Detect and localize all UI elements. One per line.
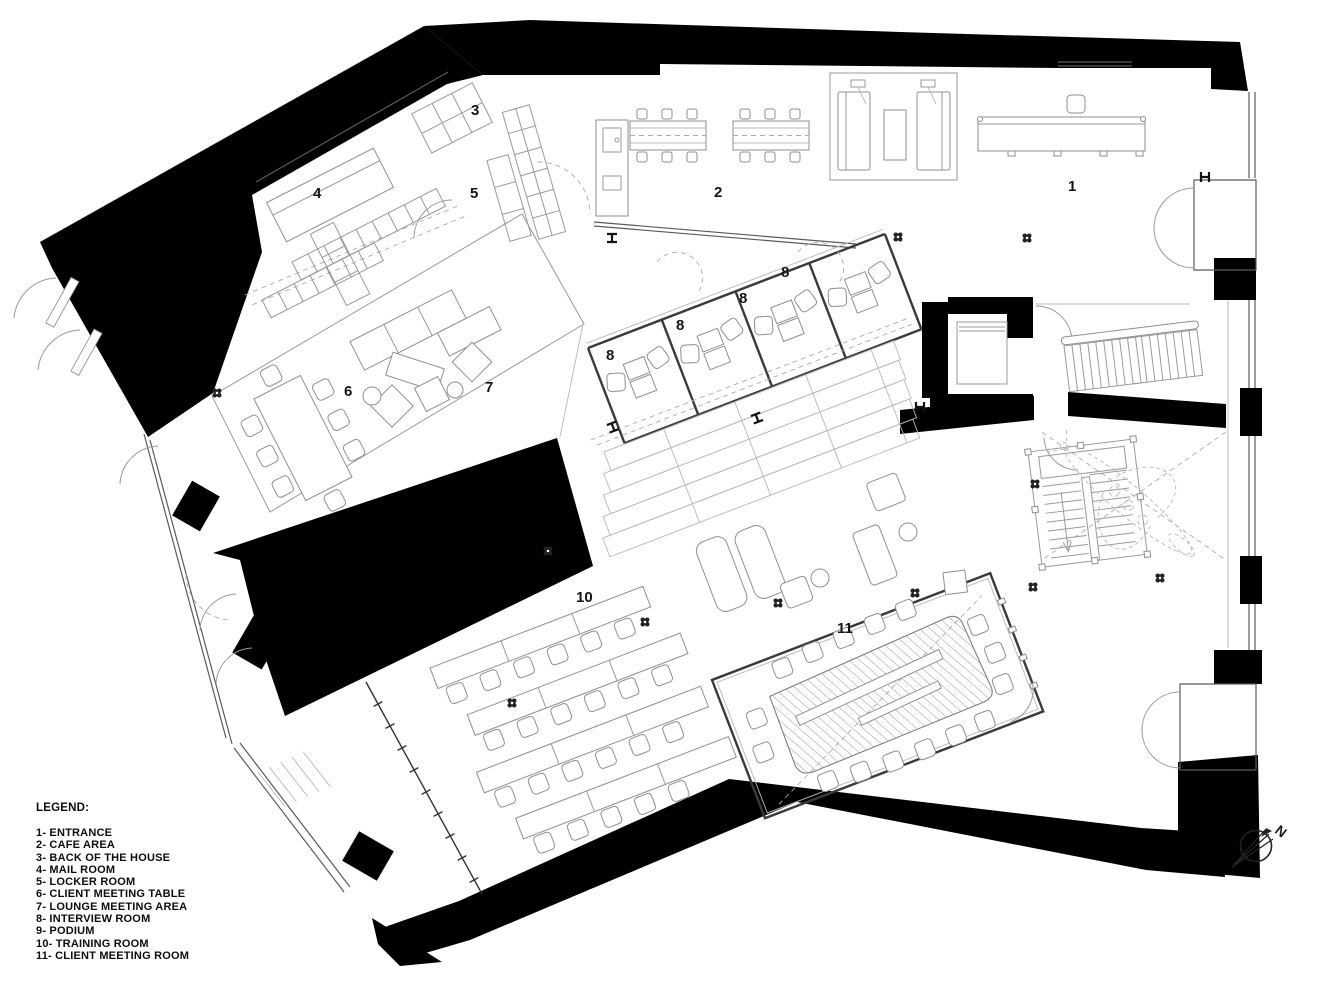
north-label: N <box>1272 822 1290 841</box>
room-label-interview-4: 8 <box>781 264 789 281</box>
stairs-upper <box>1061 320 1205 391</box>
legend-item: 3- BACK OF THE HOUSE <box>36 852 189 864</box>
room-label-back-of-house: 3 <box>471 102 479 119</box>
legend: LEGEND: 1- ENTRANCE 2- CAFE AREA 3- BACK… <box>36 802 189 962</box>
stairs-lower <box>1025 436 1151 571</box>
center-lounge <box>693 472 917 614</box>
legend-item: 2- CAFE AREA <box>36 839 189 851</box>
room-label-interview-2: 8 <box>676 317 684 334</box>
interview-rooms <box>586 229 921 443</box>
room-label-entrance: 1 <box>1068 178 1076 195</box>
legend-item: 7- LOUNGE MEETING AREA <box>36 901 189 913</box>
entry-steps <box>258 742 330 816</box>
entry-vestibule-top-right <box>1154 180 1256 270</box>
hall-sightlines <box>1042 432 1226 560</box>
legend-item: 9- PODIUM <box>36 925 189 937</box>
legend-item: 8- INTERVIEW ROOM <box>36 913 189 925</box>
floor-plan-drawing: 1 2 3 4 5 6 7 8 8 8 8 10 11 N <box>0 0 1333 1000</box>
room-label-interview-3: 8 <box>739 290 747 307</box>
airplane-artwork <box>1028 405 1224 590</box>
legend-item: 5- LOCKER ROOM <box>36 876 189 888</box>
wall-poche <box>40 20 1262 966</box>
legend-item: 11- CLIENT MEETING ROOM <box>36 950 189 962</box>
legend-item: 10- TRAINING ROOM <box>36 938 189 950</box>
cafe-area <box>594 73 957 248</box>
floor-plan-page: 1 2 3 4 5 6 7 8 8 8 8 10 11 N LEGEND: 1-… <box>0 0 1333 1000</box>
entrance-area <box>978 95 1146 156</box>
room-label-lounge: 7 <box>485 379 493 396</box>
legend-title: LEGEND: <box>36 802 189 814</box>
legend-item: 1- ENTRANCE <box>36 827 189 839</box>
room-label-interview-1: 8 <box>606 347 614 364</box>
room-label-cafe: 2 <box>714 184 722 201</box>
room-label-client-meeting: 11 <box>837 620 853 637</box>
legend-item: 4- MAIL ROOM <box>36 864 189 876</box>
room-label-mail: 4 <box>313 185 322 202</box>
room-label-training: 10 <box>576 589 593 606</box>
room-label-meeting-table: 6 <box>344 383 352 400</box>
room-label-locker: 5 <box>470 185 478 202</box>
legend-item: 6- CLIENT MEETING TABLE <box>36 888 189 900</box>
